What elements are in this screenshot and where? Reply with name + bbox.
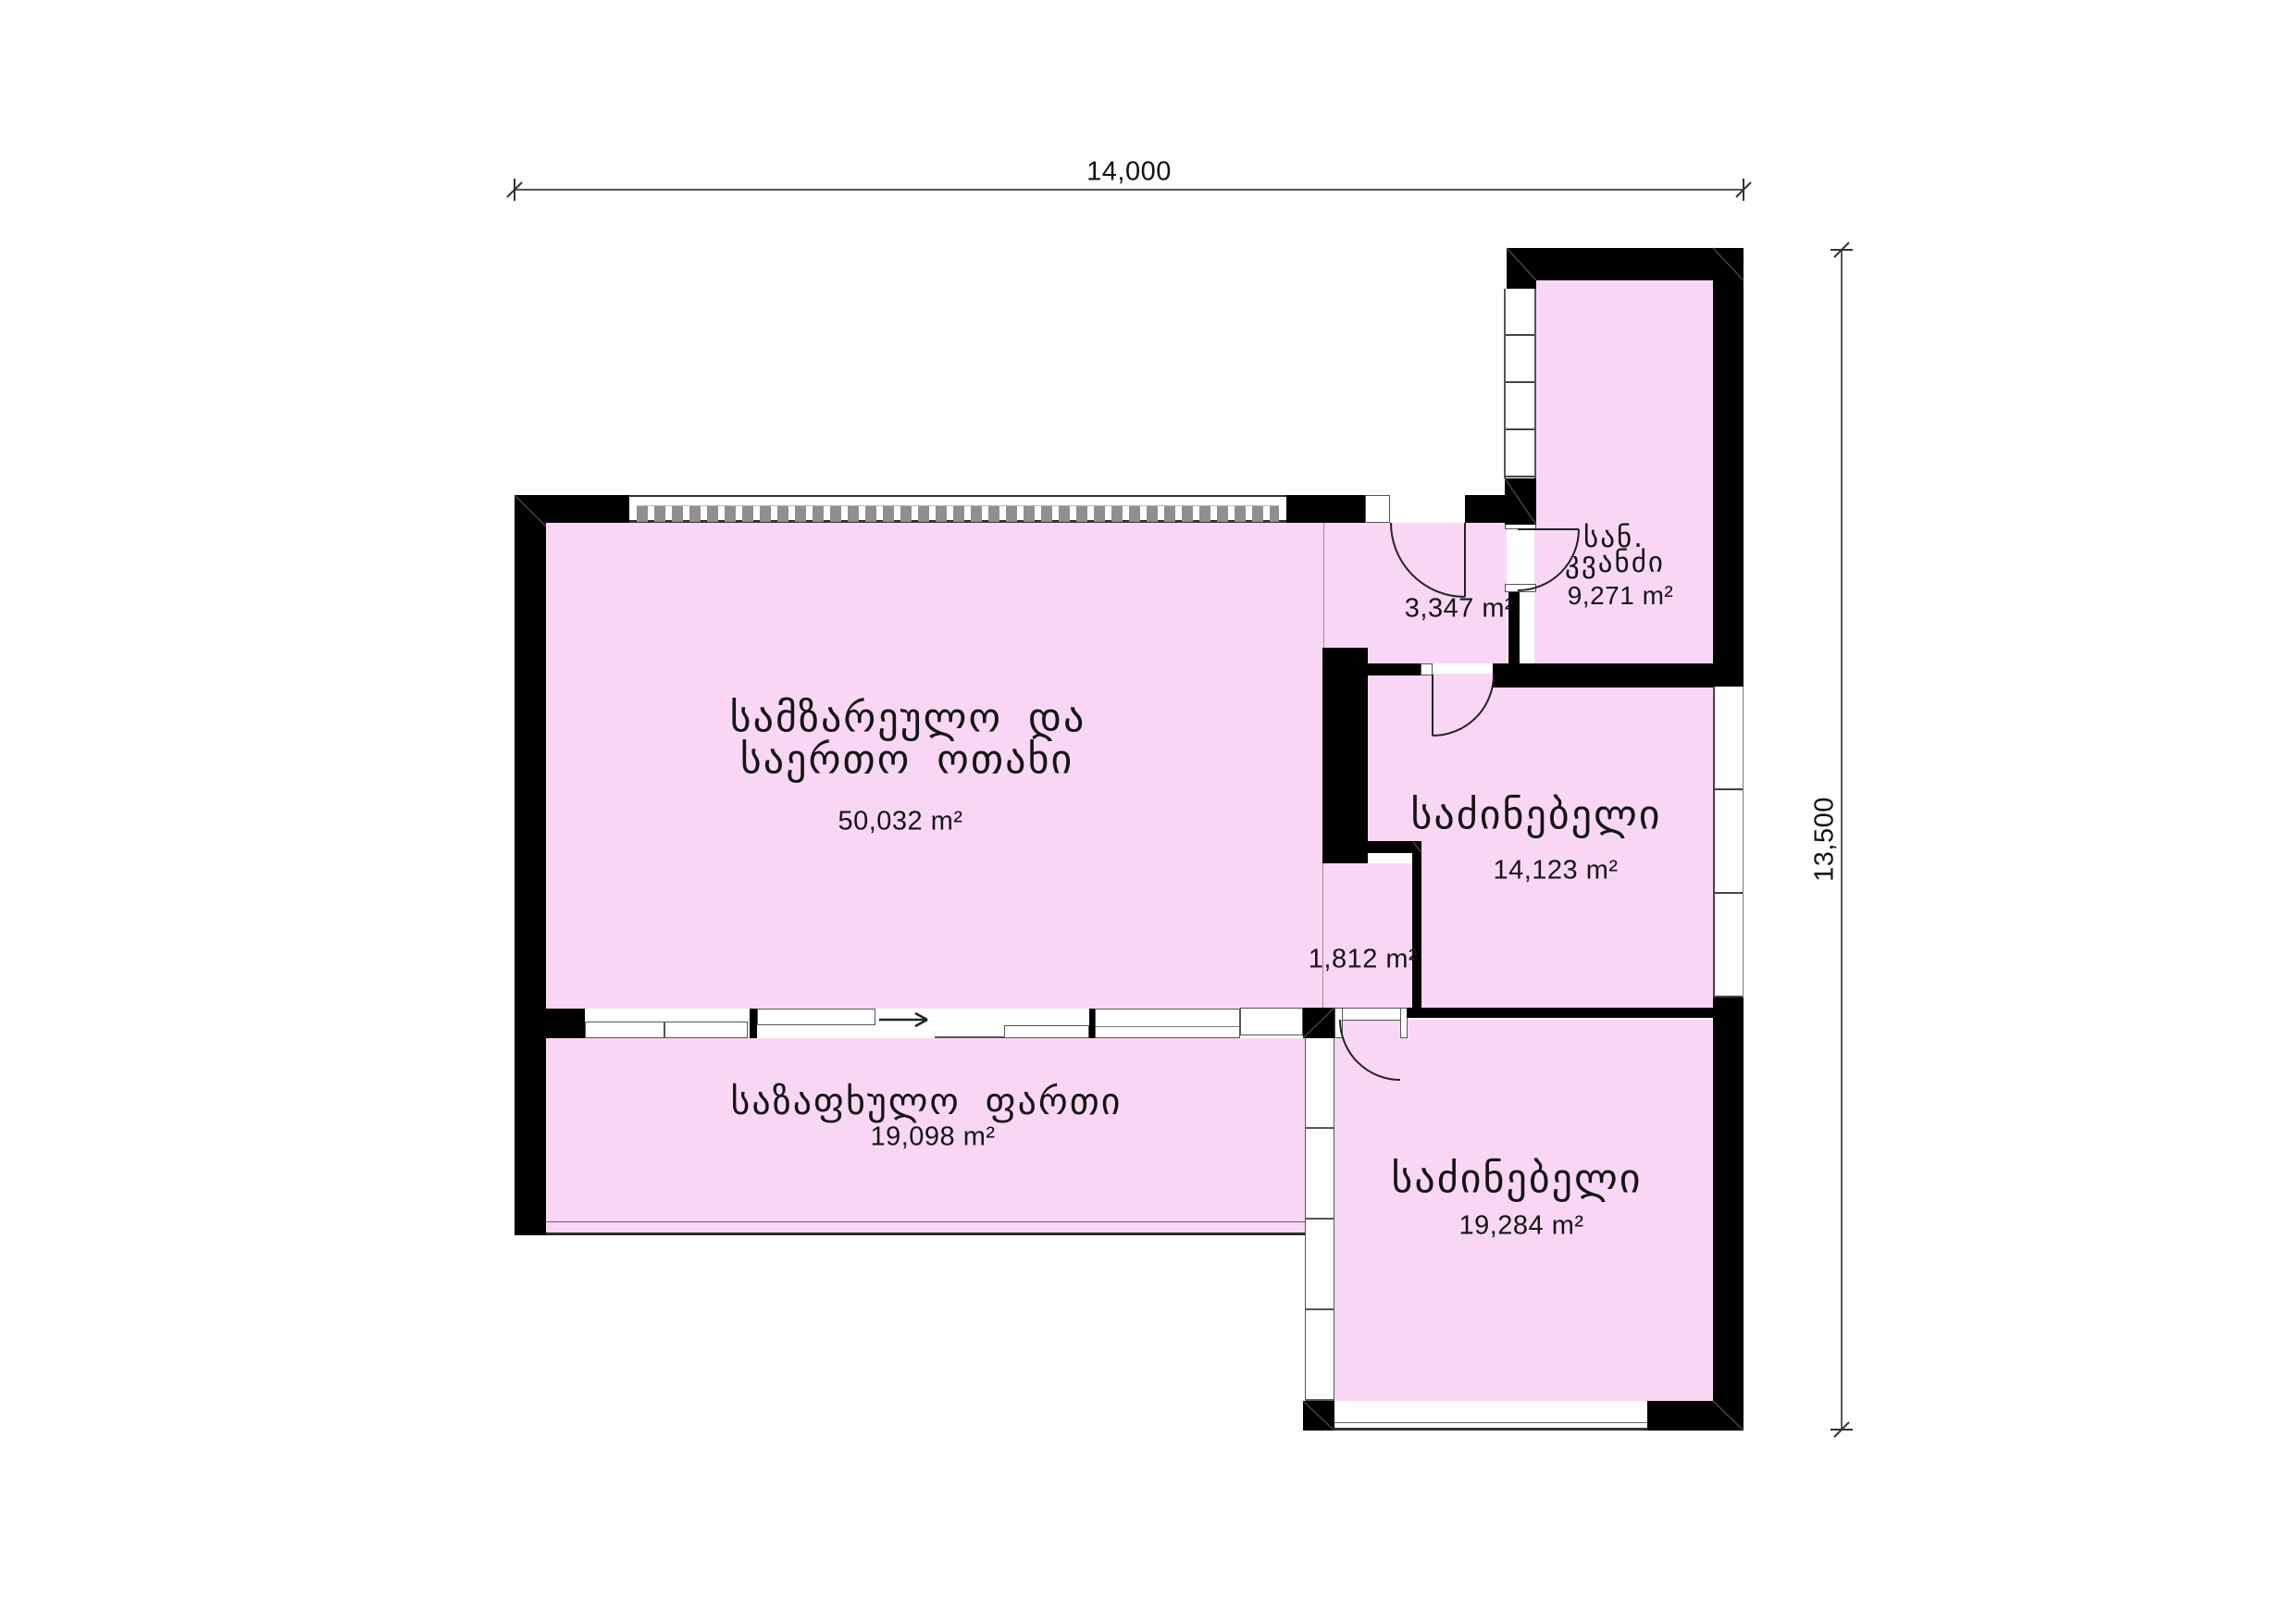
column-diagonal bbox=[1413, 842, 1421, 852]
room-area-bedroom2: 19,284 m² bbox=[1458, 1211, 1583, 1242]
column-diagonal bbox=[1505, 478, 1536, 525]
room-area-kitchen-living: 50,032 m² bbox=[838, 807, 962, 837]
room-area-hallway: 3,347 m² bbox=[1405, 594, 1514, 625]
room-label-bedroom2: საძინებელი bbox=[1391, 1156, 1642, 1203]
room-area-bedroom1: 14,123 m² bbox=[1493, 856, 1618, 886]
entrance-door-swing bbox=[1391, 523, 1465, 597]
column-diagonal bbox=[1507, 248, 1536, 280]
room-label-bathroom-line2: კვანძი bbox=[1565, 546, 1665, 579]
room-label-bedroom1: საძინებელი bbox=[1410, 792, 1661, 839]
bedroom1-door-swing bbox=[1433, 675, 1494, 736]
room-label-kitchen-living-line1: სამზარეულო და bbox=[730, 695, 1086, 742]
column-diagonal bbox=[1303, 1008, 1334, 1038]
dimension-label-width: 14,000 bbox=[1086, 157, 1172, 188]
plan-linework bbox=[0, 0, 2296, 1623]
bedroom2-door-swing bbox=[1340, 1020, 1400, 1080]
floor-plan: 14,000 13,500 სამზარეულო და საერთო ოთახი… bbox=[0, 0, 2296, 1623]
room-area-closet: 1,812 m² bbox=[1309, 945, 1418, 975]
room-area-summer-space: 19,098 m² bbox=[870, 1122, 995, 1153]
room-area-bathroom: 9,271 m² bbox=[1568, 581, 1674, 611]
column-diagonal bbox=[515, 495, 546, 527]
room-label-kitchen-living-line2: საერთო ოთახი bbox=[740, 737, 1074, 784]
column-diagonal bbox=[1713, 248, 1744, 280]
column-diagonal bbox=[1713, 1401, 1744, 1431]
column-diagonal bbox=[1303, 1401, 1334, 1431]
room-label-summer-space: საზაფხულო ფართი bbox=[731, 1081, 1123, 1123]
dimension-label-height: 13,500 bbox=[1810, 797, 1841, 882]
